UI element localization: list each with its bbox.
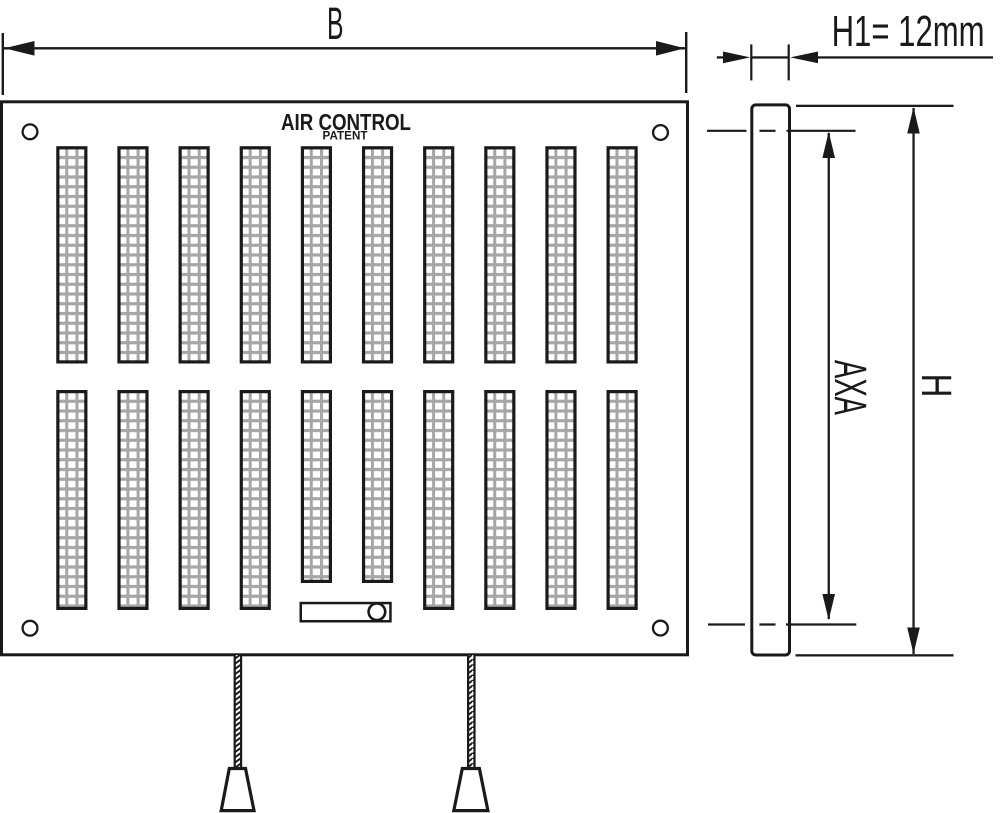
- svg-text:H: H: [912, 374, 960, 398]
- svg-text:AXA: AXA: [825, 360, 876, 415]
- svg-text:PATENT: PATENT: [323, 130, 368, 143]
- svg-text:B: B: [327, 0, 344, 49]
- svg-text:H1= 12mm: H1= 12mm: [832, 7, 985, 56]
